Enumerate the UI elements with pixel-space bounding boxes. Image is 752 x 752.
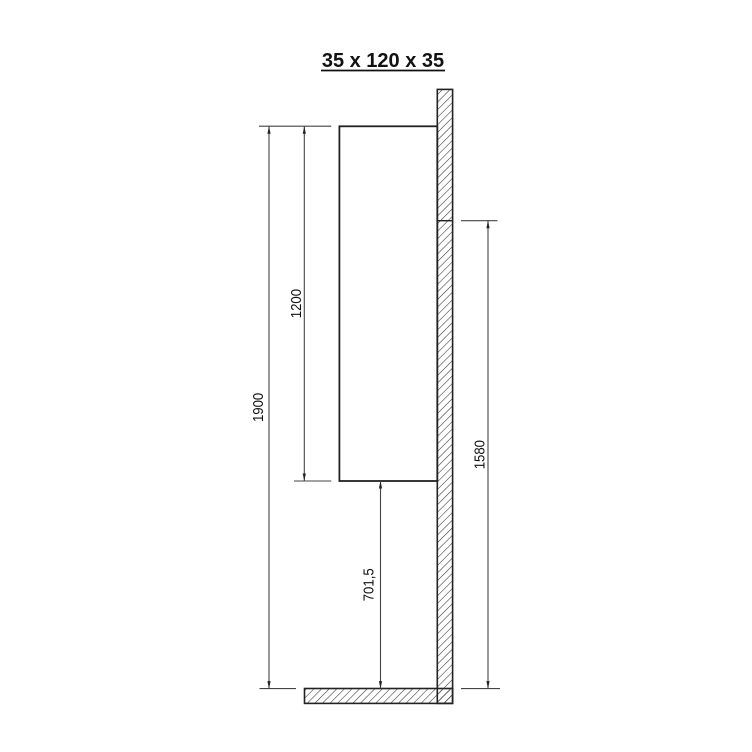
svg-text:1900: 1900 [249,393,266,422]
svg-text:1200: 1200 [287,289,304,318]
svg-text:1580: 1580 [471,440,488,469]
svg-text:701,5: 701,5 [360,568,377,601]
svg-text:35 x 120 x 35: 35 x 120 x 35 [322,50,444,72]
